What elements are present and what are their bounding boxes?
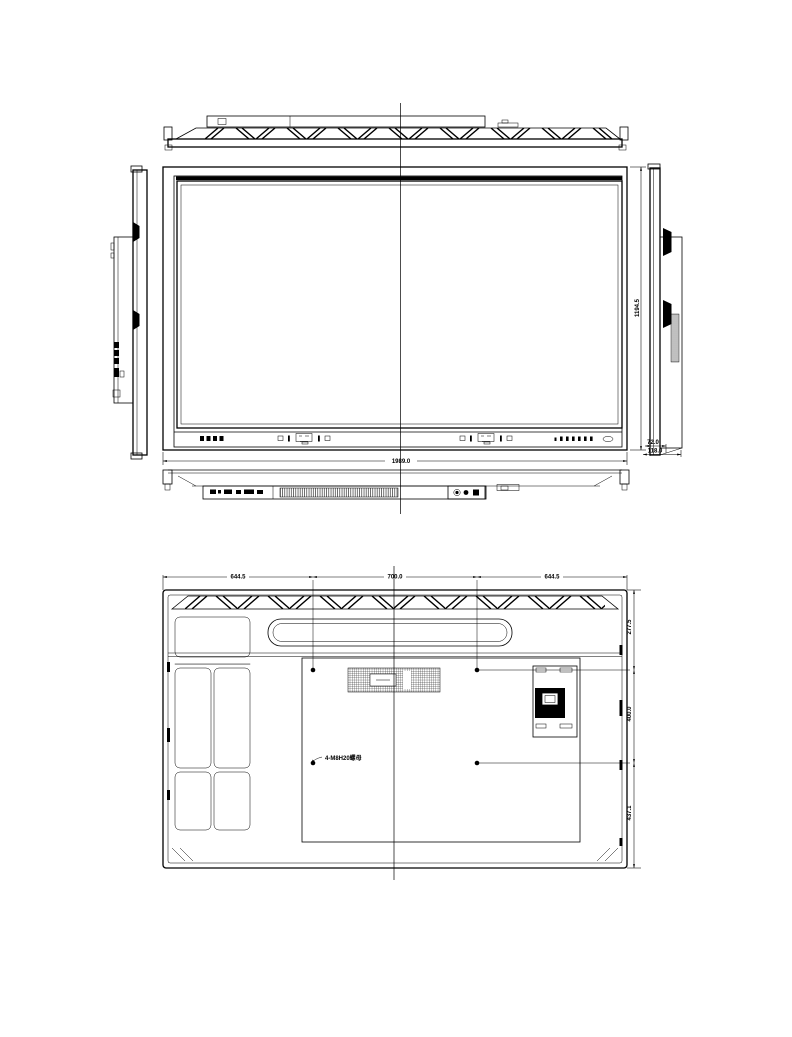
handle-recess bbox=[268, 619, 512, 646]
rear-right-dimensions: 277.5 400.0 437.1 bbox=[627, 590, 641, 868]
rear-bulge bbox=[302, 658, 580, 842]
front-width-dimension: 1989.0 bbox=[163, 452, 627, 465]
left-side-view bbox=[111, 166, 147, 459]
dim-rear-right-upper: 277.5 bbox=[627, 619, 633, 635]
dim-front-height: 1194.5 bbox=[635, 298, 641, 317]
dim-rear-right-middle: 400.0 bbox=[627, 706, 633, 722]
dim-rear-right-lower: 437.1 bbox=[627, 805, 633, 821]
handle-recess-upper bbox=[133, 222, 140, 242]
bezel-right-buttons bbox=[555, 436, 614, 441]
vesa-note-text: 4-M8H20螺母 bbox=[325, 754, 362, 762]
drawing-page: 1989.0 1194.5 bbox=[0, 0, 792, 1037]
rear-vent-slots bbox=[185, 596, 605, 609]
right-side-view: 72.0 118.0 bbox=[643, 164, 682, 457]
vesa-annotation: 4-M8H20螺母 bbox=[312, 754, 362, 763]
bezel-center-right-controls bbox=[460, 434, 512, 445]
rear-view: 644.5 700.0 644.5 bbox=[163, 573, 641, 869]
rating-plate bbox=[210, 490, 263, 495]
dim-rear-top-right: 644.5 bbox=[544, 575, 560, 581]
dim-front-width: 1989.0 bbox=[392, 459, 411, 465]
bezel-center-left-controls bbox=[278, 434, 330, 445]
top-small-bump bbox=[498, 123, 518, 127]
bottom-view bbox=[163, 470, 629, 499]
front-view: 1989.0 1194.5 bbox=[163, 167, 646, 465]
side-vent-grille bbox=[671, 314, 679, 362]
dim-depth-overall: 118.0 bbox=[648, 449, 663, 455]
handle-recess-lower bbox=[133, 310, 140, 330]
rear-bottom-feet bbox=[172, 848, 618, 861]
top-vent-slots bbox=[205, 128, 613, 139]
depth-dimensions: 72.0 118.0 bbox=[643, 440, 681, 457]
dim-rear-top-center: 700.0 bbox=[387, 575, 403, 581]
screen-area bbox=[177, 181, 622, 428]
active-area bbox=[181, 185, 618, 424]
dimensional-drawing: 1989.0 1194.5 bbox=[0, 0, 792, 1037]
bezel-left-icons bbox=[200, 436, 224, 441]
dim-depth-body: 72.0 bbox=[647, 440, 659, 446]
rear-top-dimensions: 644.5 700.0 644.5 bbox=[163, 573, 627, 669]
bottom-port-box bbox=[448, 486, 486, 499]
rear-power-module bbox=[533, 666, 577, 737]
bottom-vent-grille bbox=[280, 488, 398, 497]
power-sensor-oval bbox=[603, 436, 613, 441]
front-height-dimension: 1194.5 bbox=[630, 167, 646, 450]
handle-recess-lower-r bbox=[663, 300, 672, 328]
side-port-module bbox=[114, 237, 133, 403]
dim-rear-top-left: 644.5 bbox=[230, 575, 246, 581]
rear-left-compartments bbox=[175, 617, 250, 830]
top-view bbox=[164, 116, 628, 150]
front-top-strip bbox=[176, 177, 622, 181]
top-module bbox=[207, 116, 485, 127]
handle-recess-upper-r bbox=[663, 228, 672, 256]
vesa-hole-top-left bbox=[311, 668, 316, 673]
